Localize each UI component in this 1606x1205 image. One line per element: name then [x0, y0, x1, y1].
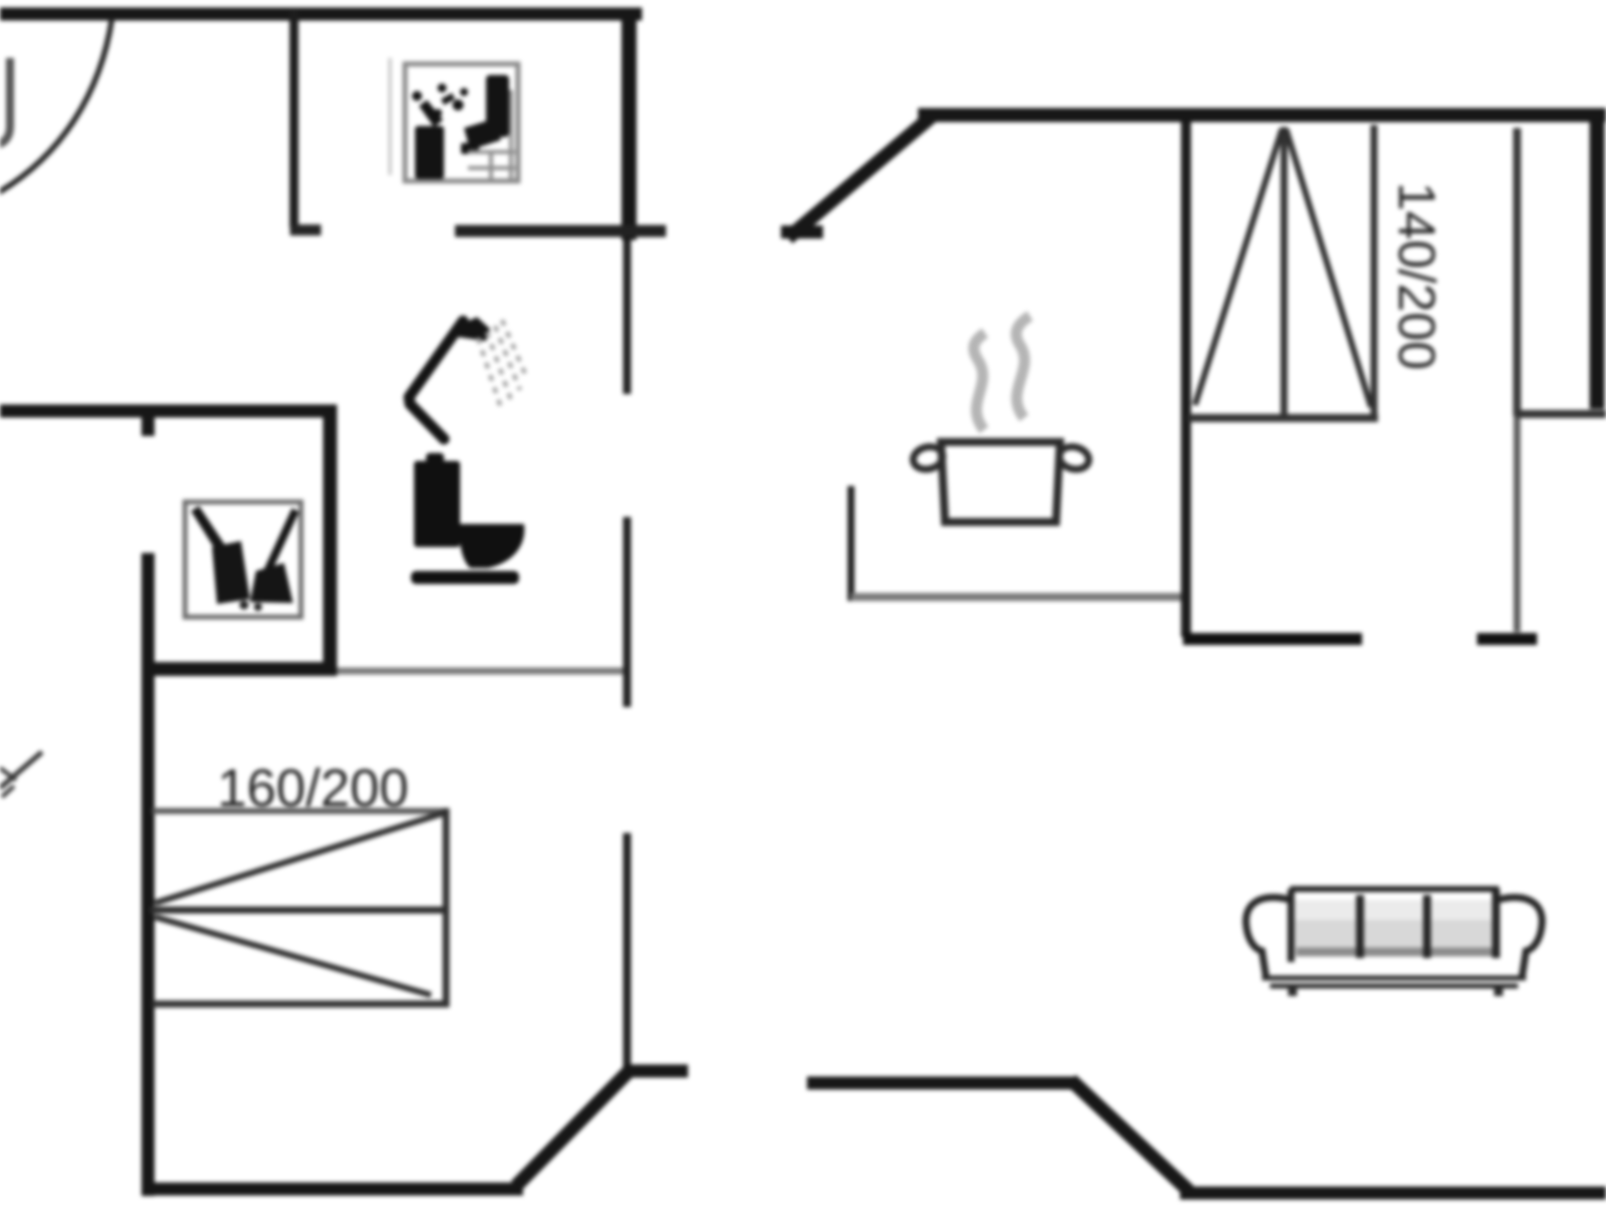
svg-text:140/200: 140/200 — [1387, 182, 1445, 370]
